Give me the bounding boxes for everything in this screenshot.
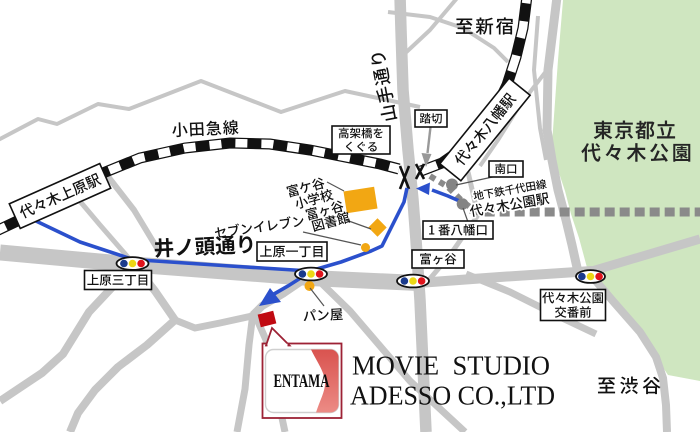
svg-text:ADESSO CO.,LTD: ADESSO CO.,LTD <box>350 381 555 411</box>
svg-text:ENTAMA: ENTAMA <box>274 372 330 392</box>
svg-text:MOVIE STUDIO: MOVIE STUDIO <box>352 351 550 381</box>
